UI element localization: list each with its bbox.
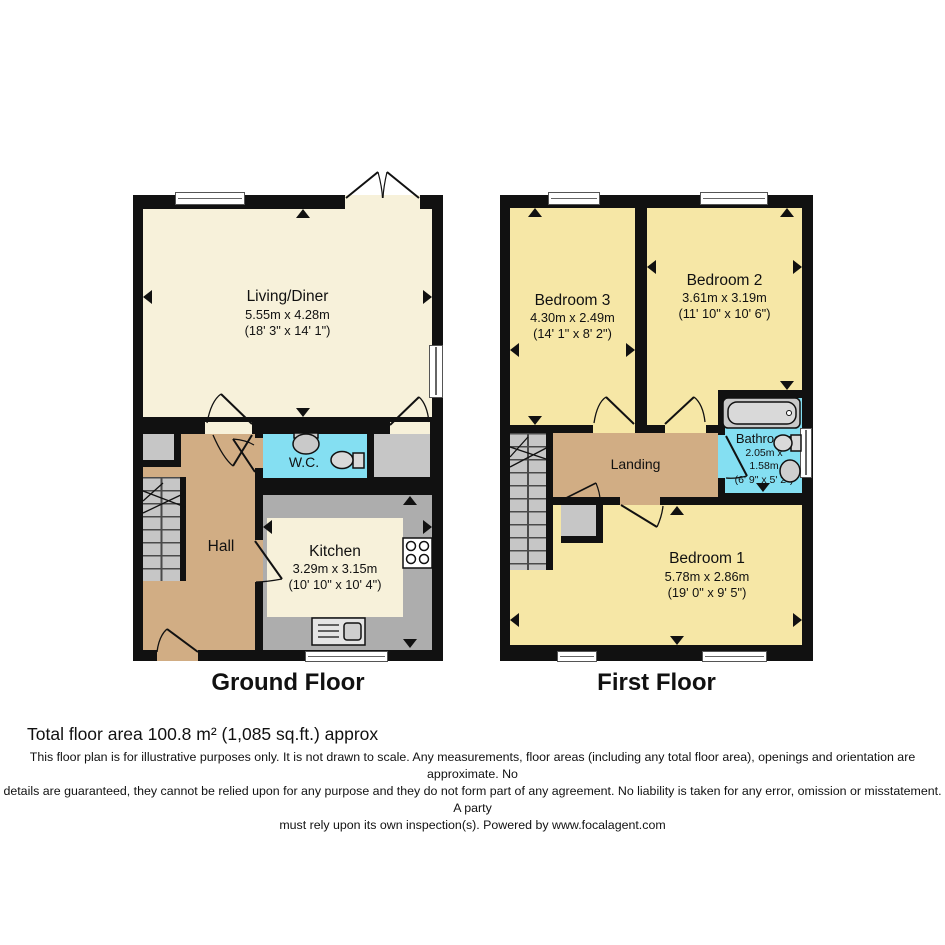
window-pane [703,198,765,200]
disclaimer-line-3: must rely upon its own inspection(s). Po… [0,817,945,834]
room-label: Bedroom 3 [535,291,611,310]
door-gap-bedroom1 [620,497,660,505]
window-bedroom1-right [702,651,767,662]
hall-store [143,434,181,467]
measure-arrow-bed2-left [647,260,656,274]
window-bathroom-right [800,428,812,478]
disclaimer-text: This floor plan is for illustrative purp… [0,749,945,834]
room-kitchen: Kitchen 3.29m x 3.15m (10' 10" x 10' 4") [267,518,403,617]
room-label: Landing [611,456,661,474]
measure-arrow-bed3-left [510,343,519,357]
measure-arrow-bath-down [756,483,770,492]
door-gap-wc [255,438,263,468]
first-floor-plan: Bedroom 3 4.30m x 2.49m (14' 1" x 8' 2")… [500,195,813,661]
stairs-ground [143,477,186,581]
room-label: Bedroom 1 [669,549,745,568]
measure-arrow-kitchen-right [423,520,432,534]
room-dim-imperial: (11' 10" x 10' 6") [679,306,771,322]
wall-living-divider [143,422,432,434]
window-bedroom1-left [557,651,597,662]
measure-arrow-bath-right [790,402,799,416]
door-gap-bedroom3 [593,425,635,433]
wc-label: W.C. [279,454,329,472]
measure-arrow-bed1-left [510,613,519,627]
room-label: Bathroom [719,431,809,447]
room-dim-imperial: (19' 0" x 9' 5") [668,585,747,601]
door-gap-living-hall [205,422,252,434]
front-door-gap [157,650,198,661]
disclaimer-line-2: details are guaranteed, they cannot be r… [0,783,945,817]
window-living-top [175,192,245,205]
store-cupboard [374,434,430,477]
measure-arrow-bed1-up [670,506,684,515]
total-floor-area: Total floor area 100.8 m² (1,085 sq.ft.)… [27,724,378,745]
wall-bathroom-top [718,390,802,398]
window-pane [435,347,437,395]
room-dim-imperial: (18' 3" x 14' 1") [245,323,331,339]
window-pane [805,430,807,475]
room-bedroom1: Bedroom 1 5.78m x 2.86m (19' 0" x 9' 5") [510,505,802,645]
measure-arrow-living-down [296,408,310,417]
measure-arrow-kitchen-left [263,520,272,534]
window-pane [308,656,385,658]
hall-label: Hall [191,537,251,556]
window-pane [178,198,242,200]
measure-arrow-bed1-down [670,636,684,645]
wall-wc-kitchen [255,478,432,495]
room-dim-metric: 3.61m x 3.19m [682,290,767,306]
room-label: Bedroom 2 [687,271,763,290]
stairs-first [510,433,553,570]
measure-arrow-bed2-down [780,381,794,390]
room-label: Living/Diner [247,287,329,306]
floorplan-page: { "ground": { "caption": "Ground Floor",… [0,0,945,945]
landing-cupboard [561,505,603,543]
measure-arrow-bed3-up [528,208,542,217]
window-bedroom2-top [700,192,768,205]
room-dim-metric2: 1.58m [719,460,809,473]
measure-arrow-bed3-down [528,416,542,425]
room-bedroom3: Bedroom 3 4.30m x 2.49m (14' 1" x 8' 2") [510,208,635,425]
door-gap-kitchen [255,540,263,582]
door-gap-bedroom2 [665,425,706,433]
ground-floor-plan: Living/Diner 5.55m x 4.28m (18' 3" x 14'… [133,195,443,661]
window-pane [560,656,594,658]
first-floor-caption: First Floor [500,669,813,697]
measure-arrow-living-left [143,290,152,304]
window-kitchen-bottom [305,651,388,662]
room-dim-imperial: (10' 10" x 10' 4") [289,577,382,593]
window-living-right [429,345,443,398]
measure-arrow-bath-left [726,402,735,416]
room-dim-metric1: 2.05m x [719,447,809,460]
measure-arrow-kitchen-down [403,639,417,648]
disclaimer-line-1: This floor plan is for illustrative purp… [0,749,945,783]
measure-arrow-kitchen-up [403,496,417,505]
window-pane [705,656,764,658]
french-door-gap [345,195,420,209]
room-dim-metric: 4.30m x 2.49m [530,310,615,326]
measure-arrow-bed3-right [626,343,635,357]
room-landing: Landing [553,433,718,497]
window-bedroom3-top [548,192,600,205]
window-pane [551,198,597,200]
room-dim-metric: 3.29m x 3.15m [293,561,378,577]
room-dim-metric: 5.55m x 4.28m [245,307,330,323]
room-dim-metric: 5.78m x 2.86m [665,569,750,585]
measure-arrow-bed2-right [793,260,802,274]
door-gap-living-rear [390,422,430,434]
room-label: Kitchen [309,542,361,561]
measure-arrow-bed1-right [793,613,802,627]
wall-bathroom-bottom [718,493,802,505]
ground-floor-caption: Ground Floor [133,669,443,697]
room-dim-imperial: (14' 1" x 8' 2") [533,326,612,342]
measure-arrow-living-up [296,209,310,218]
room-living-diner: Living/Diner 5.55m x 4.28m (18' 3" x 14'… [143,209,432,417]
bathroom-label-block: Bathroom 2.05m x 1.58m (6' 9" x 5' 2") [719,431,809,487]
measure-arrow-living-right [423,290,432,304]
measure-arrow-bed2-up [780,208,794,217]
